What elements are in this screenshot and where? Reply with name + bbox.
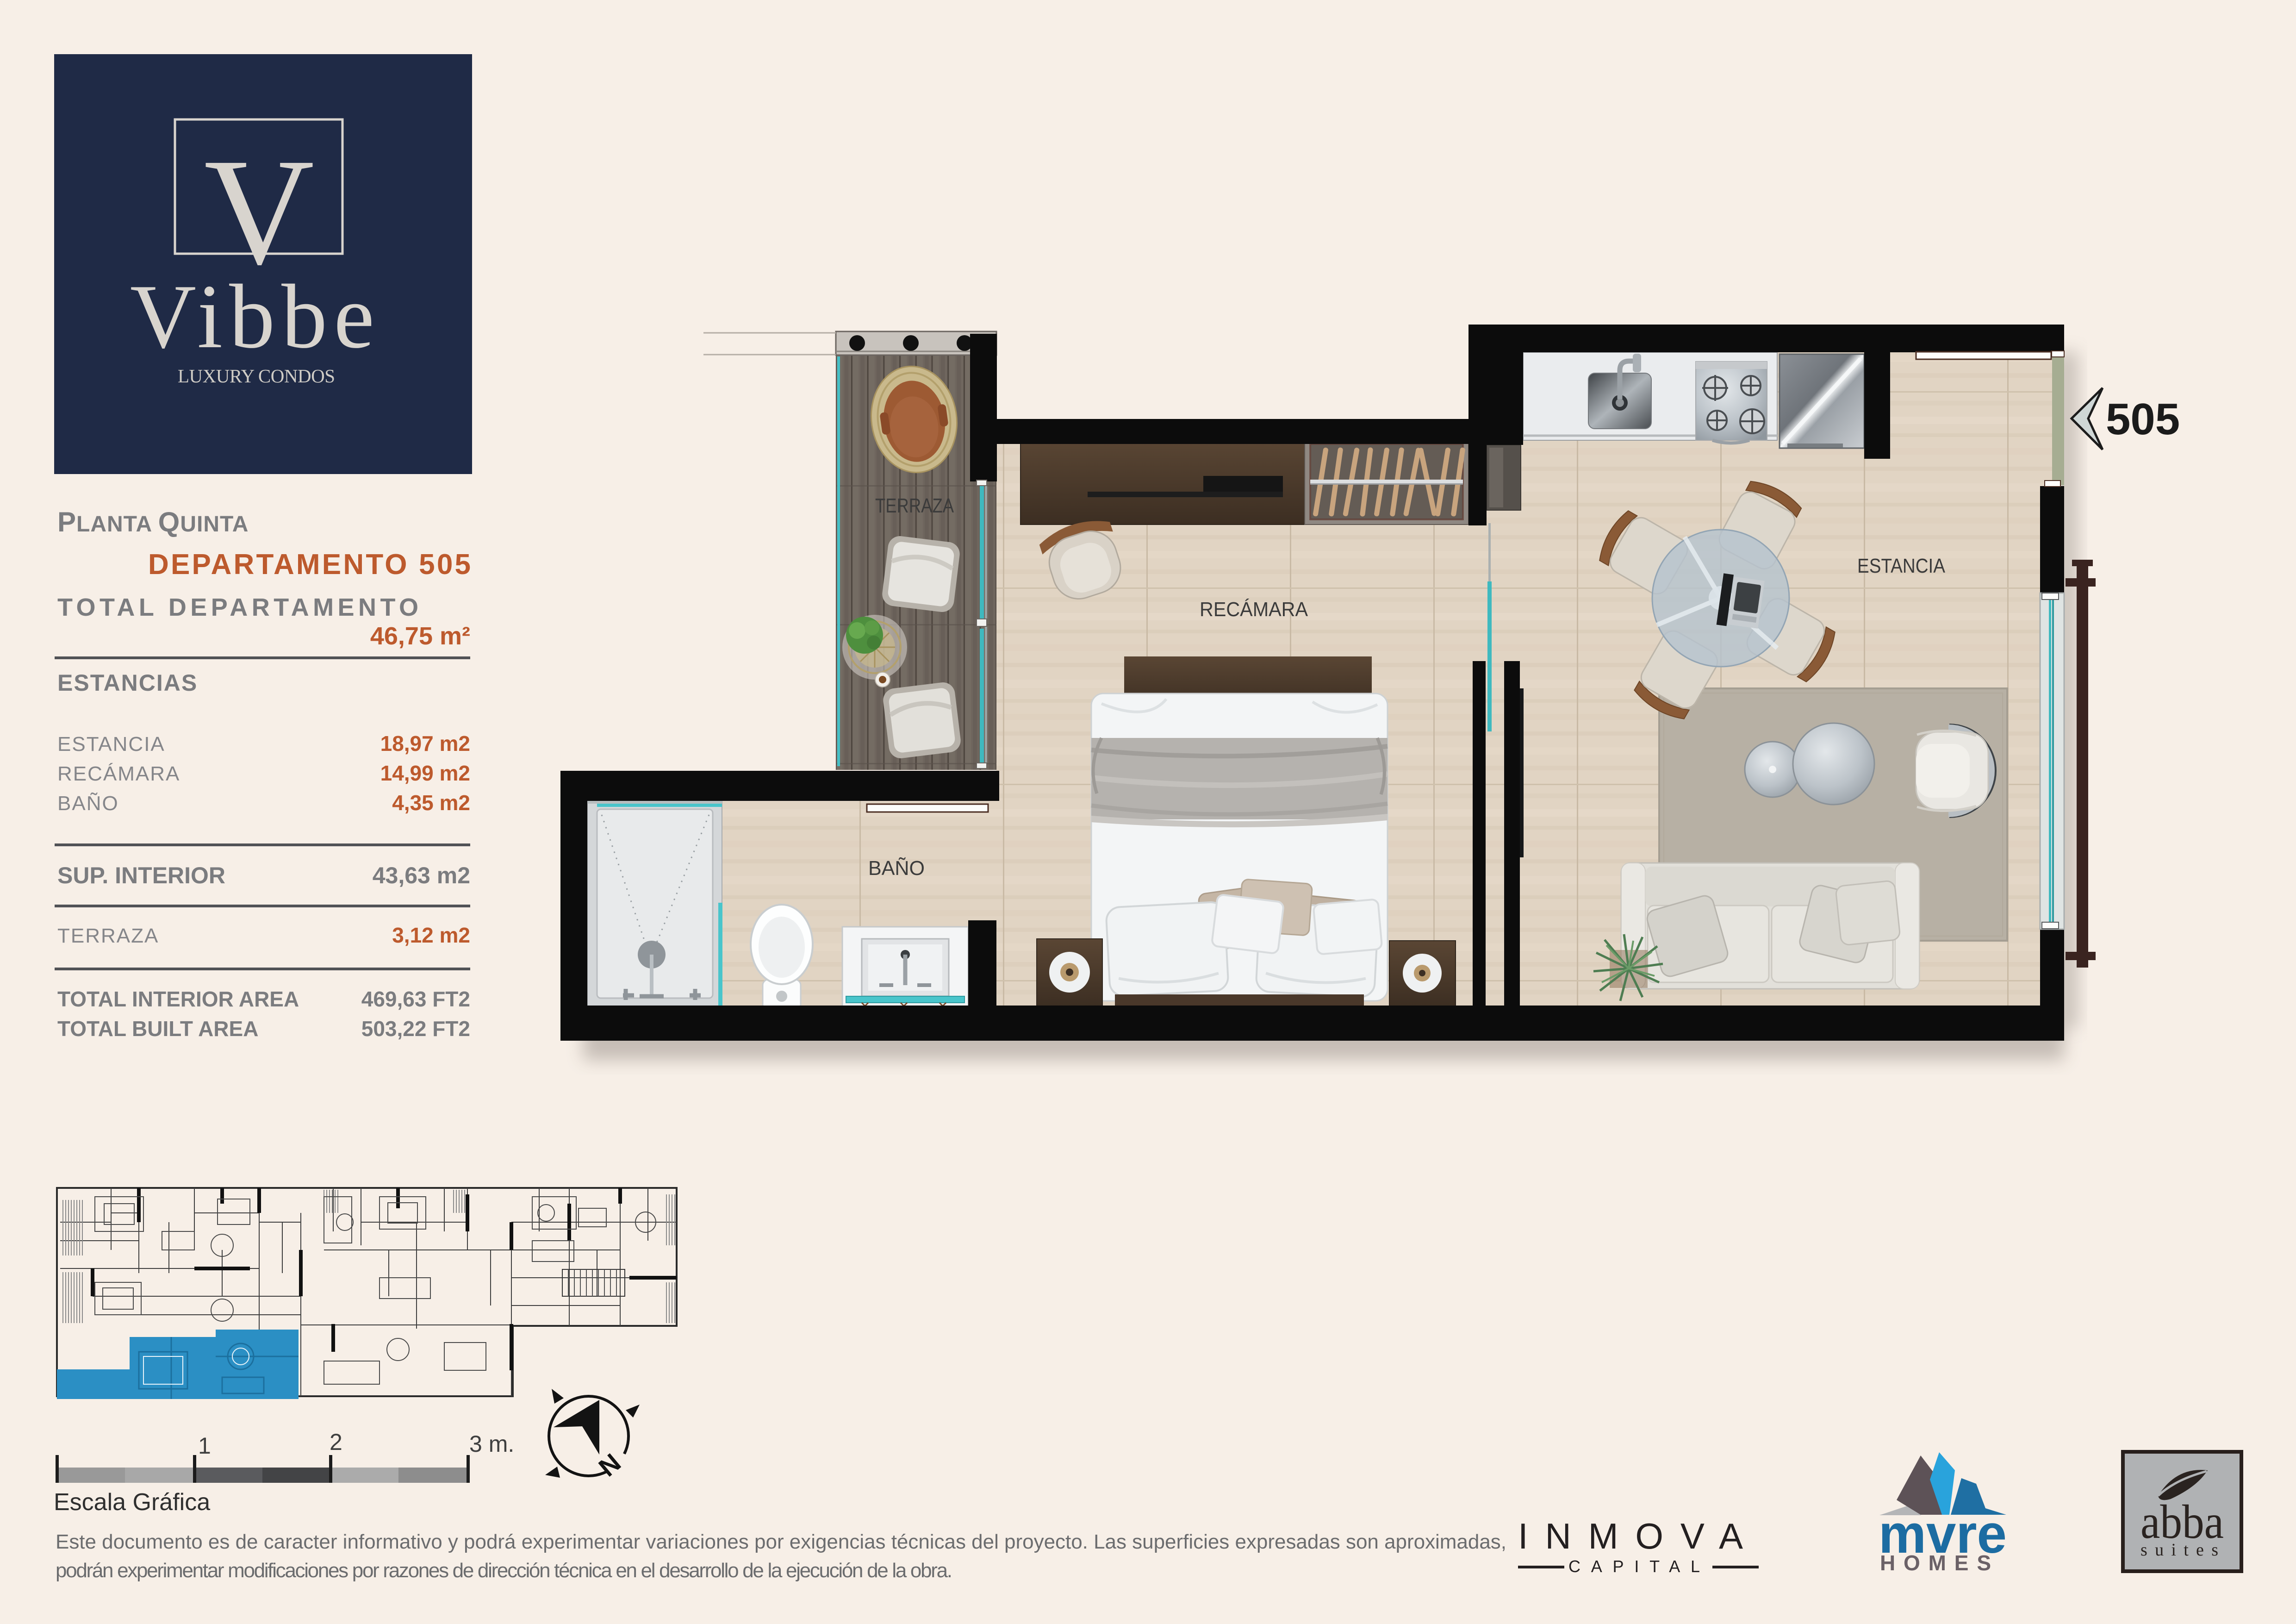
svg-text:Vibbe: Vibbe — [130, 266, 381, 367]
svg-text:LUXURY CONDOS: LUXURY CONDOS — [178, 365, 341, 387]
svg-text:SUP. INTERIOR: SUP. INTERIOR — [57, 862, 225, 888]
svg-text:ESTANCIA: ESTANCIA — [57, 733, 165, 756]
svg-text:3 m.: 3 m. — [469, 1431, 514, 1457]
svg-text:podrán experimentar modificaci: podrán experimentar modificaciones por r… — [56, 1559, 952, 1582]
svg-text:469,63 FT2: 469,63 FT2 — [361, 987, 470, 1011]
svg-text:TOTAL BUILT AREA: TOTAL BUILT AREA — [57, 1017, 258, 1041]
svg-text:RECÁMARA: RECÁMARA — [57, 762, 180, 785]
svg-text:TERRAZA: TERRAZA — [57, 924, 159, 947]
svg-text:18,97 m2: 18,97 m2 — [380, 731, 470, 756]
svg-text:BAÑO: BAÑO — [868, 856, 925, 880]
svg-text:TERRAZA: TERRAZA — [875, 494, 954, 517]
svg-text:1: 1 — [198, 1433, 211, 1459]
svg-text:Escala Gráfica: Escala Gráfica — [54, 1489, 210, 1516]
svg-text:503,22 FT2: 503,22 FT2 — [361, 1017, 470, 1041]
svg-text:HOMES: HOMES — [1880, 1551, 2004, 1575]
svg-text:14,99 m2: 14,99 m2 — [380, 761, 470, 785]
svg-text:3,12 m2: 3,12 m2 — [392, 923, 470, 947]
svg-text:46,75 m²: 46,75 m² — [370, 622, 470, 650]
svg-text:TOTAL DEPARTAMENTO: TOTAL DEPARTAMENTO — [57, 593, 418, 621]
svg-text:INMOVA: INMOVA — [1518, 1516, 1759, 1556]
svg-text:2: 2 — [330, 1429, 342, 1455]
svg-text:ESTANCIA: ESTANCIA — [1857, 555, 1946, 577]
svg-text:BAÑO: BAÑO — [57, 792, 119, 815]
svg-text:43,63 m2: 43,63 m2 — [373, 862, 470, 888]
svg-text:4,35 m2: 4,35 m2 — [392, 791, 470, 815]
svg-text:DEPARTAMENTO 505: DEPARTAMENTO 505 — [148, 549, 471, 581]
svg-text:TOTAL INTERIOR AREA: TOTAL INTERIOR AREA — [57, 987, 299, 1011]
svg-text:505: 505 — [2106, 394, 2180, 444]
svg-text:ESTANCIAS: ESTANCIAS — [57, 670, 198, 696]
svg-text:RECÁMARA: RECÁMARA — [1200, 598, 1308, 621]
svg-text:Este documento es de caracter: Este documento es de caracter informativ… — [56, 1530, 1506, 1553]
